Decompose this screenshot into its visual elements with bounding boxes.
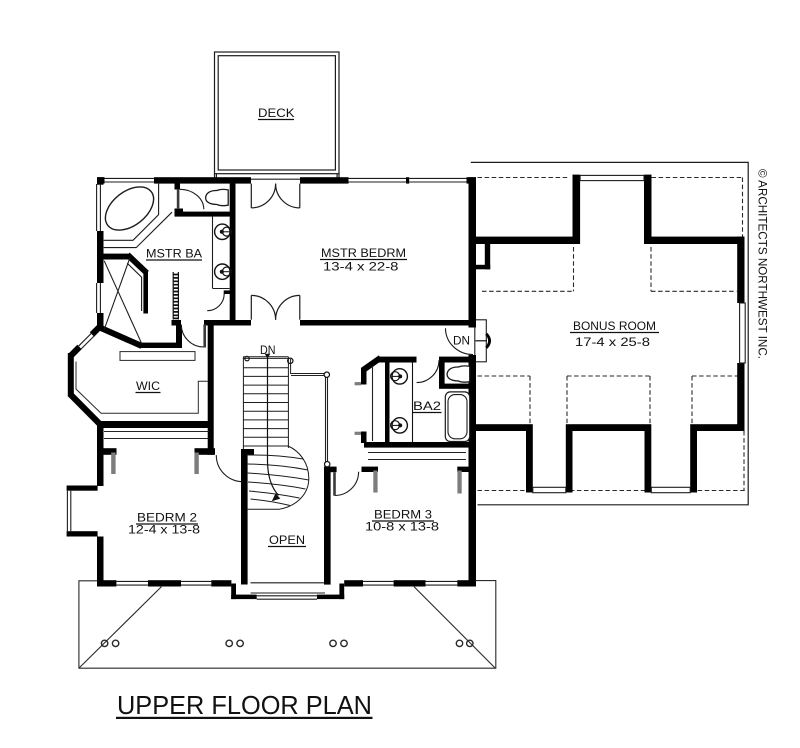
svg-text:DN: DN [453,334,470,348]
svg-text:MSTR BEDRM: MSTR BEDRM [321,246,406,260]
svg-text:BEDRM 2: BEDRM 2 [137,511,197,525]
svg-text:WIC: WIC [136,379,160,393]
svg-text:BEDRM 3: BEDRM 3 [374,508,432,522]
svg-text:12-4 x 13-8: 12-4 x 13-8 [128,525,200,537]
svg-text:BA2: BA2 [413,399,441,413]
svg-text:OPEN: OPEN [269,533,305,547]
svg-text:DN: DN [260,343,276,357]
svg-text:10-8 x 13-8: 10-8 x 13-8 [365,522,439,534]
svg-text:17-4 x 25-8: 17-4 x 25-8 [575,337,650,349]
svg-text:MSTR BA: MSTR BA [146,247,202,261]
svg-text:UPPER FLOOR PLAN: UPPER FLOOR PLAN [117,690,372,720]
svg-text:BONUS ROOM: BONUS ROOM [573,319,656,333]
svg-text:© ARCHITECTS NORTHWEST INC.: © ARCHITECTS NORTHWEST INC. [756,169,768,359]
svg-text:13-4 x 22-8: 13-4 x 22-8 [323,262,399,274]
svg-text:DECK: DECK [258,106,295,120]
